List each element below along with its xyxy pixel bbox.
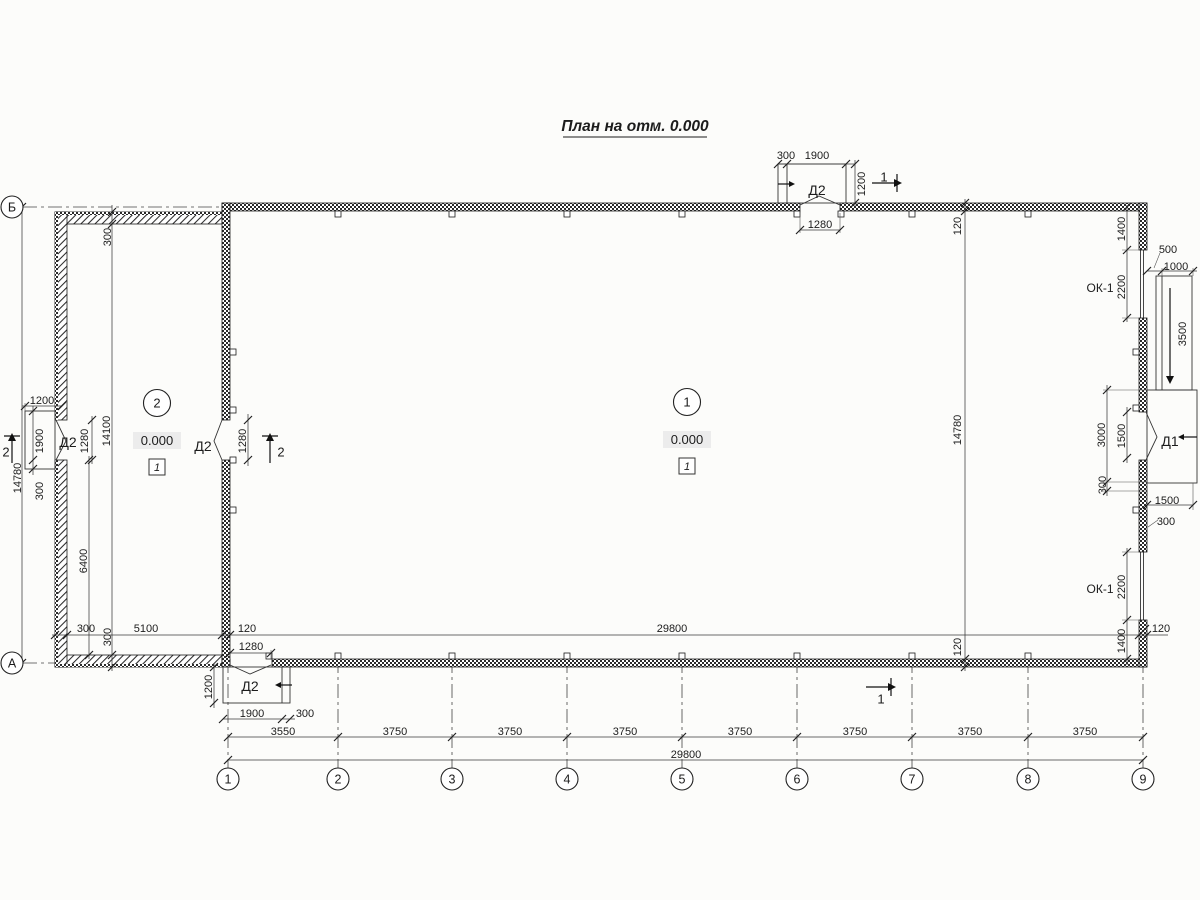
dim-300-annex-top-wall: 300 [102,228,114,246]
grid-column-label: 8 [1025,772,1032,786]
dim-3750-bay: 3750 [383,726,407,738]
structure-layer [25,164,1197,703]
dim-3750-bay: 3750 [1073,726,1097,738]
dim-300-annex-width: 300 [77,623,95,635]
dim-3750-bay: 3750 [728,726,752,738]
grid-column-label: 4 [564,772,571,786]
dim-300-porch-d1: 300 [1157,516,1175,528]
dim-1280-door-mid: 1280 [237,429,249,453]
dim-1900-porch-bottom: 1900 [240,708,264,720]
door-label-d1: Д1 [1161,433,1178,449]
grid-column-label: 7 [909,772,916,786]
room-level-mark: 0.000 [141,433,174,448]
dim-120-right-wall: 120 [1152,623,1170,635]
dim-1200-porch-bottom: 1200 [203,675,215,699]
annex-insulation-strip-left-upper [55,212,58,420]
section-mark-2-left: 2 [2,445,9,460]
dim-14780-left: 14780 [12,463,24,494]
dim-3750-bay: 3750 [843,726,867,738]
dim-120-bottom-wall: 120 [952,638,964,656]
dim-1400-window-bottom: 1400 [1116,629,1128,653]
floor-type-number: 1 [154,462,160,474]
dim-2200-window-bottom: 2200 [1116,575,1128,599]
dim-3750-bay: 3750 [498,726,522,738]
dimensions-layer [4,160,1197,764]
dim-1400-window-top: 1400 [1116,217,1128,241]
window-ok1-top-frame [1141,250,1144,318]
dim-300-porch-left: 300 [34,482,46,500]
door-swing-d2-bottom [230,665,271,674]
dim-300-door-d1: 300 [1097,476,1109,494]
main-wall-right-seg1 [1139,203,1147,250]
annotations-layer: 30019001200Д2128011201478012014005001000… [2,150,1188,761]
dim-2200-window-top: 2200 [1116,275,1128,299]
grid-column-label: 2 [335,772,342,786]
window-label-ok1-bottom: ОК-1 [1087,582,1114,596]
floor-type-number: 1 [684,461,690,473]
dim-300-annex-bottom-wall: 300 [102,628,114,646]
grid-column-label: 6 [794,772,801,786]
door-label-d2-mid: Д2 [194,438,211,454]
dim-300-top-door: 300 [777,150,795,162]
plan-canvas: План на отм. 0.000 [0,0,1200,900]
door-label-d2-top: Д2 [808,182,825,198]
walls-layer [55,203,1147,667]
floor-plan-drawing: План на отм. 0.000 [0,0,1200,900]
dimension-lines [22,160,1197,760]
dim-3500-ramp: 3500 [1177,322,1189,346]
main-wall-right-seg4 [1139,620,1147,667]
rooms-layer: 10.000120.0001 [133,389,711,476]
dim-1900-porch-left: 1900 [34,429,46,453]
entry-arrow-top-icon [789,181,795,187]
main-wall-top-left [222,203,800,211]
section-mark-1-top: 1 [880,170,887,185]
window-label-ok1-top: ОК-1 [1087,281,1114,295]
annex-insulation-strip-bottom [55,664,222,667]
dim-3750-bay: 3750 [958,726,982,738]
dim-1200-top-door: 1200 [856,172,868,196]
grid-column-label: 3 [449,772,456,786]
dim-120-top-wall: 120 [952,217,964,235]
dim-300-porch-bottom: 300 [296,708,314,720]
dimension-ticks [18,160,1197,764]
room-number: 2 [153,396,160,411]
door-label-d2-bottom: Д2 [241,678,258,694]
drawing-title: План на отм. 0.000 [561,118,709,135]
ramp-arrow-down-icon [1166,376,1174,384]
axes-layer [23,207,1143,768]
dim-5100-annex-width: 5100 [134,623,158,635]
window-ok1-bottom-frame [1141,552,1144,620]
entry-arrow-bottom-icon [275,682,281,688]
partition-wall-upper [222,203,230,420]
dim-120-partition: 120 [238,623,256,635]
section-mark-1-bottom: 1 [877,692,884,707]
dim-6400-annex: 6400 [78,549,90,573]
main-wall-right-seg2 [1139,318,1147,412]
annex-insulation-strip-top [55,212,222,215]
grid-row-label: А [8,656,17,670]
room-number: 1 [683,395,690,410]
grid-row-label: Б [8,200,16,214]
dim-3750-bay: 3750 [613,726,637,738]
dim-29800-interior: 29800 [657,623,688,635]
section-mark-2-mid: 2 [277,445,284,460]
dim-1000-ramp: 1000 [1164,261,1188,273]
dim-500-ramp: 500 [1159,244,1177,256]
dim-1200-porch-left: 1200 [30,395,54,407]
dim-3550-bay: 3550 [271,726,295,738]
room-level-mark: 0.000 [671,432,704,447]
dim-29800-overall: 29800 [671,749,702,761]
main-wall-top-right [840,203,1147,211]
grid-column-label: 1 [225,772,232,786]
dim-1280-door-bottom: 1280 [239,641,263,653]
extension-lines [25,213,1193,659]
door-swing-d2-mid [214,420,222,460]
section-mark-2-mid-arrow [262,433,278,463]
dim-14780-interior: 14780 [952,415,964,446]
dim-1280-door-left: 1280 [79,429,91,453]
dim-1280-top-door: 1280 [808,219,832,231]
dim-3000-door-d1: 3000 [1096,423,1108,447]
grid-bubbles-layer: 123456789БА [1,196,1154,790]
entry-arrow-d1-icon [1178,434,1184,440]
main-wall-bottom [272,659,1147,667]
grid-column-label: 9 [1140,772,1147,786]
dim-1500-door-d1: 1500 [1116,424,1128,448]
dim-14100-annex: 14100 [101,416,113,447]
dim-1900-top-door: 1900 [805,150,829,162]
door-swing-d1 [1146,412,1157,460]
grid-column-label: 5 [679,772,686,786]
dim-1500-porch-d1: 1500 [1155,495,1179,507]
annex-insulation-strip-left-lower [55,460,58,667]
door-label-d2-left: Д2 [59,434,76,450]
